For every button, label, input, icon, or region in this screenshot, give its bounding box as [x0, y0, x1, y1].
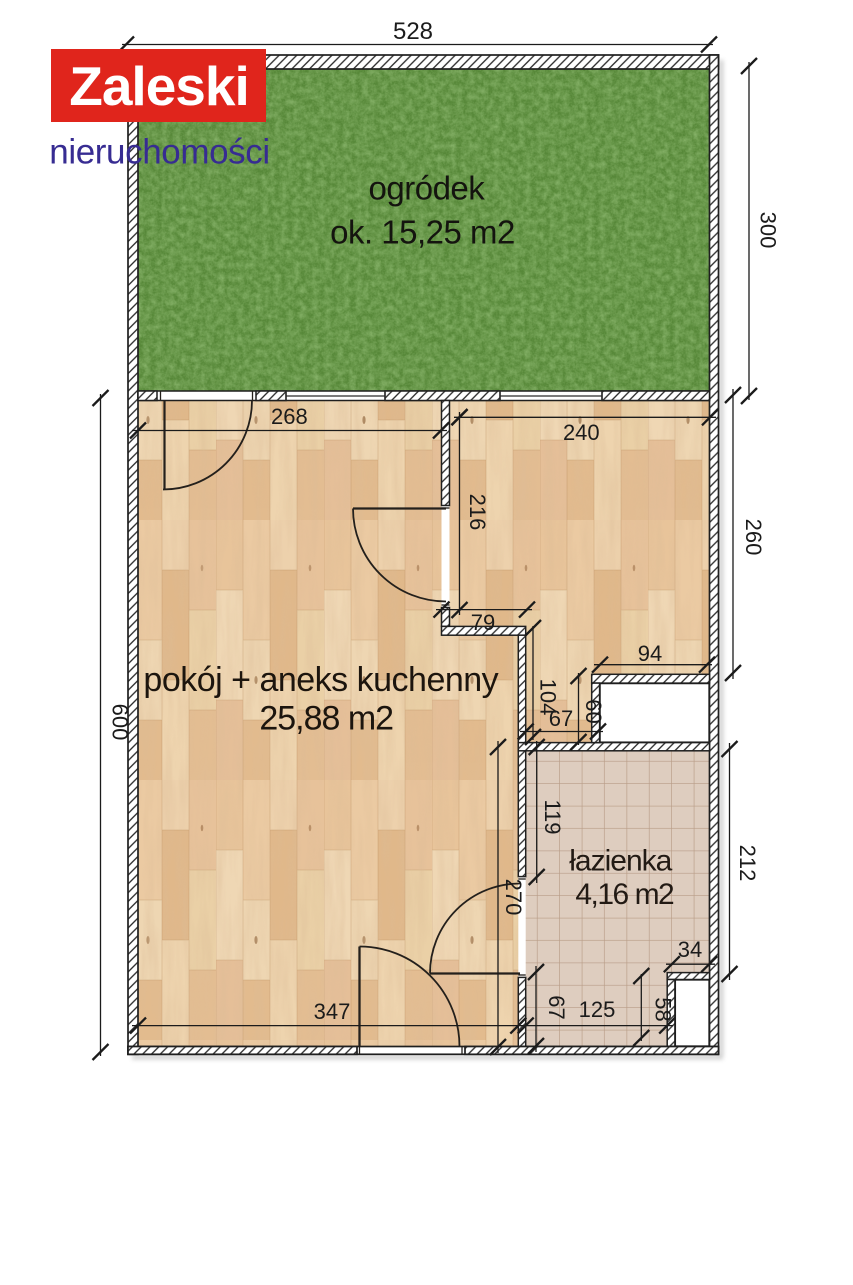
svg-text:119: 119: [540, 799, 565, 834]
svg-text:347: 347: [314, 999, 351, 1024]
svg-text:60: 60: [581, 699, 606, 723]
svg-text:94: 94: [638, 641, 662, 666]
svg-text:nieruchomości: nieruchomości: [49, 133, 269, 172]
svg-text:ok. 15,25 m2: ok. 15,25 m2: [330, 214, 515, 251]
svg-text:ogródek: ogródek: [369, 170, 486, 207]
svg-text:67: 67: [544, 995, 569, 1019]
svg-text:268: 268: [271, 404, 308, 429]
svg-text:125: 125: [579, 997, 616, 1022]
svg-text:pokój + aneks kuchenny: pokój + aneks kuchenny: [143, 661, 498, 699]
svg-text:260: 260: [741, 519, 766, 556]
svg-text:600: 600: [108, 704, 133, 741]
svg-text:216: 216: [465, 494, 490, 531]
svg-text:212: 212: [735, 845, 760, 882]
svg-text:79: 79: [471, 610, 495, 635]
svg-text:58: 58: [651, 997, 676, 1021]
svg-text:25,88 m2: 25,88 m2: [259, 700, 393, 738]
svg-text:240: 240: [563, 420, 600, 445]
svg-text:270: 270: [501, 879, 526, 916]
svg-text:4,16 m2: 4,16 m2: [575, 878, 674, 911]
svg-text:67: 67: [549, 706, 573, 731]
svg-text:300: 300: [756, 212, 781, 249]
svg-text:34: 34: [678, 937, 702, 962]
svg-text:łazienka: łazienka: [569, 845, 672, 878]
svg-text:Zaleski: Zaleski: [69, 55, 249, 117]
svg-text:528: 528: [393, 18, 433, 45]
